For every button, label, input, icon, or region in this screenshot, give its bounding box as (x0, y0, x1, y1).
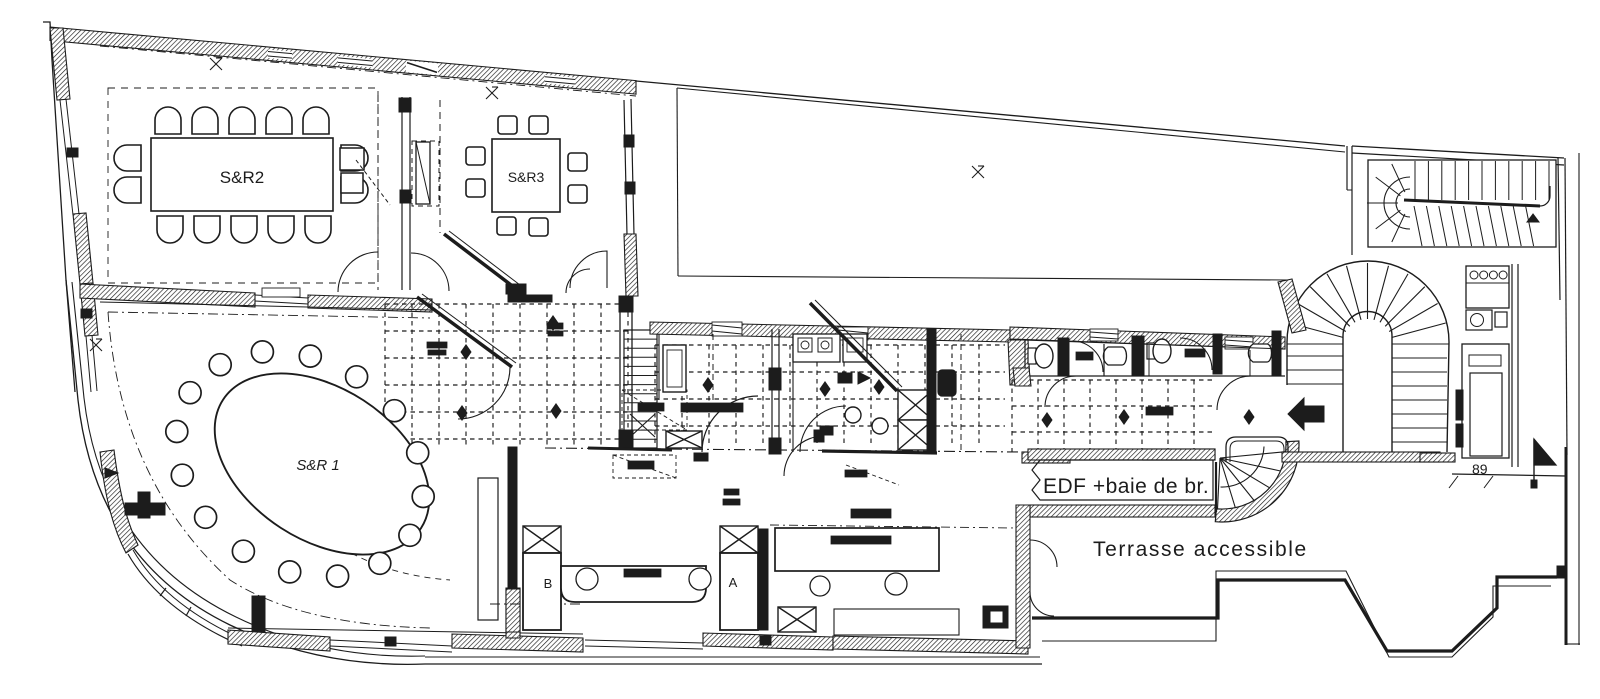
svg-text:B: B (544, 576, 553, 591)
svg-text:EDF +baie de br.: EDF +baie de br. (1043, 475, 1209, 498)
svg-text:S&R 1: S&R 1 (296, 457, 339, 474)
svg-text:A: A (729, 575, 738, 590)
svg-text:S&R2: S&R2 (220, 168, 264, 187)
svg-text:S&R3: S&R3 (508, 169, 545, 185)
svg-text:Terrasse accessible: Terrasse accessible (1093, 538, 1308, 561)
svg-text:89: 89 (1472, 461, 1488, 477)
